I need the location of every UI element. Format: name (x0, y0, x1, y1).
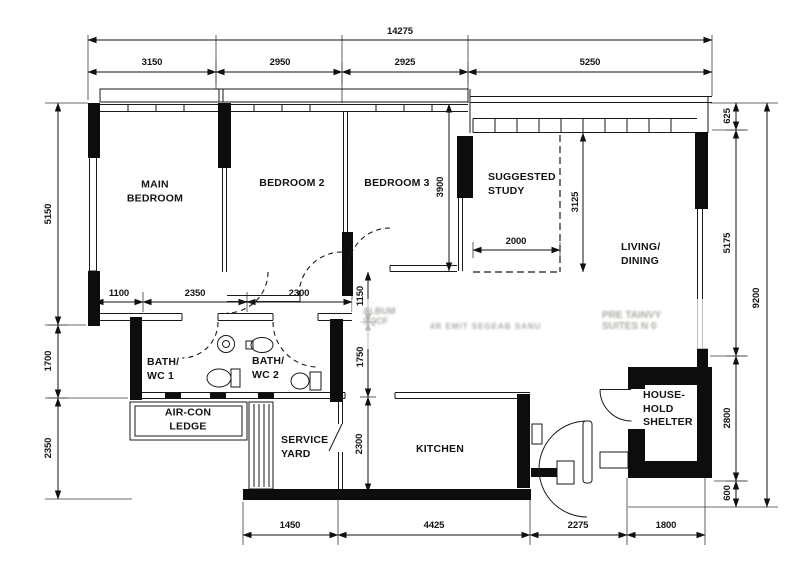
watermark-middle: 4R EMIT SEGEAB SANU (430, 322, 541, 331)
dim-hall-3: 2300 (289, 288, 310, 300)
dim-hall-1: 1100 (109, 288, 129, 300)
room-label-bedroom-2: BEDROOM 2 (259, 177, 324, 191)
dim-top-4: 5250 (580, 57, 601, 69)
dim-bottom-2: 4425 (424, 520, 445, 532)
dim-bottom-3: 2275 (568, 520, 589, 532)
room-label-bedroom-3: BEDROOM 3 (364, 177, 429, 191)
dim-bedroom3-depth: 3900 (435, 177, 447, 198)
dim-kitchen-depth: 2300 (354, 434, 366, 455)
room-label-household-shelter: HOUSE- HOLD SHELTER (643, 389, 693, 430)
room-label-service-yard: SERVICE YARD (281, 434, 328, 461)
dim-left-2: 1700 (43, 351, 55, 372)
dim-top-3: 2925 (395, 57, 416, 69)
dim-top-2: 2950 (270, 57, 291, 69)
room-label-main-bedroom: MAIN BEDROOM (127, 178, 183, 205)
dim-right-3: 2800 (722, 408, 734, 429)
dim-right-1: 625 (722, 108, 734, 124)
dim-total-width: 14275 (387, 26, 413, 38)
room-label-bath-wc-2: BATH/ WC 2 (252, 355, 284, 382)
dim-right-2: 5175 (722, 233, 734, 254)
dim-hall-v-1: 1150 (355, 286, 367, 306)
dim-bottom-4: 1800 (656, 520, 677, 532)
dim-study-width: 2000 (506, 236, 527, 248)
floor-plan: ALBUM SQCF 4R EMIT SEGEAB SANU PRE TAINV… (0, 0, 800, 575)
room-label-bath-wc-1: BATH/ WC 1 (147, 356, 179, 383)
watermark-left: ALBUM SQCF (363, 306, 396, 326)
dim-top-1: 3150 (142, 57, 163, 69)
dim-right-4: 600 (722, 485, 734, 501)
dim-left-1: 5150 (43, 204, 55, 225)
dim-study-depth: 3125 (570, 192, 582, 213)
room-label-living-dining: LIVING/ DINING (621, 241, 660, 268)
dim-left-3: 2350 (43, 438, 55, 459)
dim-hall-2: 2350 (185, 288, 206, 300)
study-outline (473, 135, 560, 272)
watermark-right: PRE TAINVY SUITES N 0 (602, 310, 661, 332)
dim-bottom-1: 1450 (280, 520, 301, 532)
dim-total-height: 9200 (751, 288, 763, 309)
dim-hall-v-2: 1750 (355, 347, 367, 368)
room-label-suggested-study: SUGGESTED STUDY (488, 171, 556, 198)
room-label-kitchen: KITCHEN (416, 443, 464, 457)
entrance-door-leaf (583, 421, 592, 483)
room-label-aircon-ledge: AIR-CON LEDGE (165, 406, 211, 433)
